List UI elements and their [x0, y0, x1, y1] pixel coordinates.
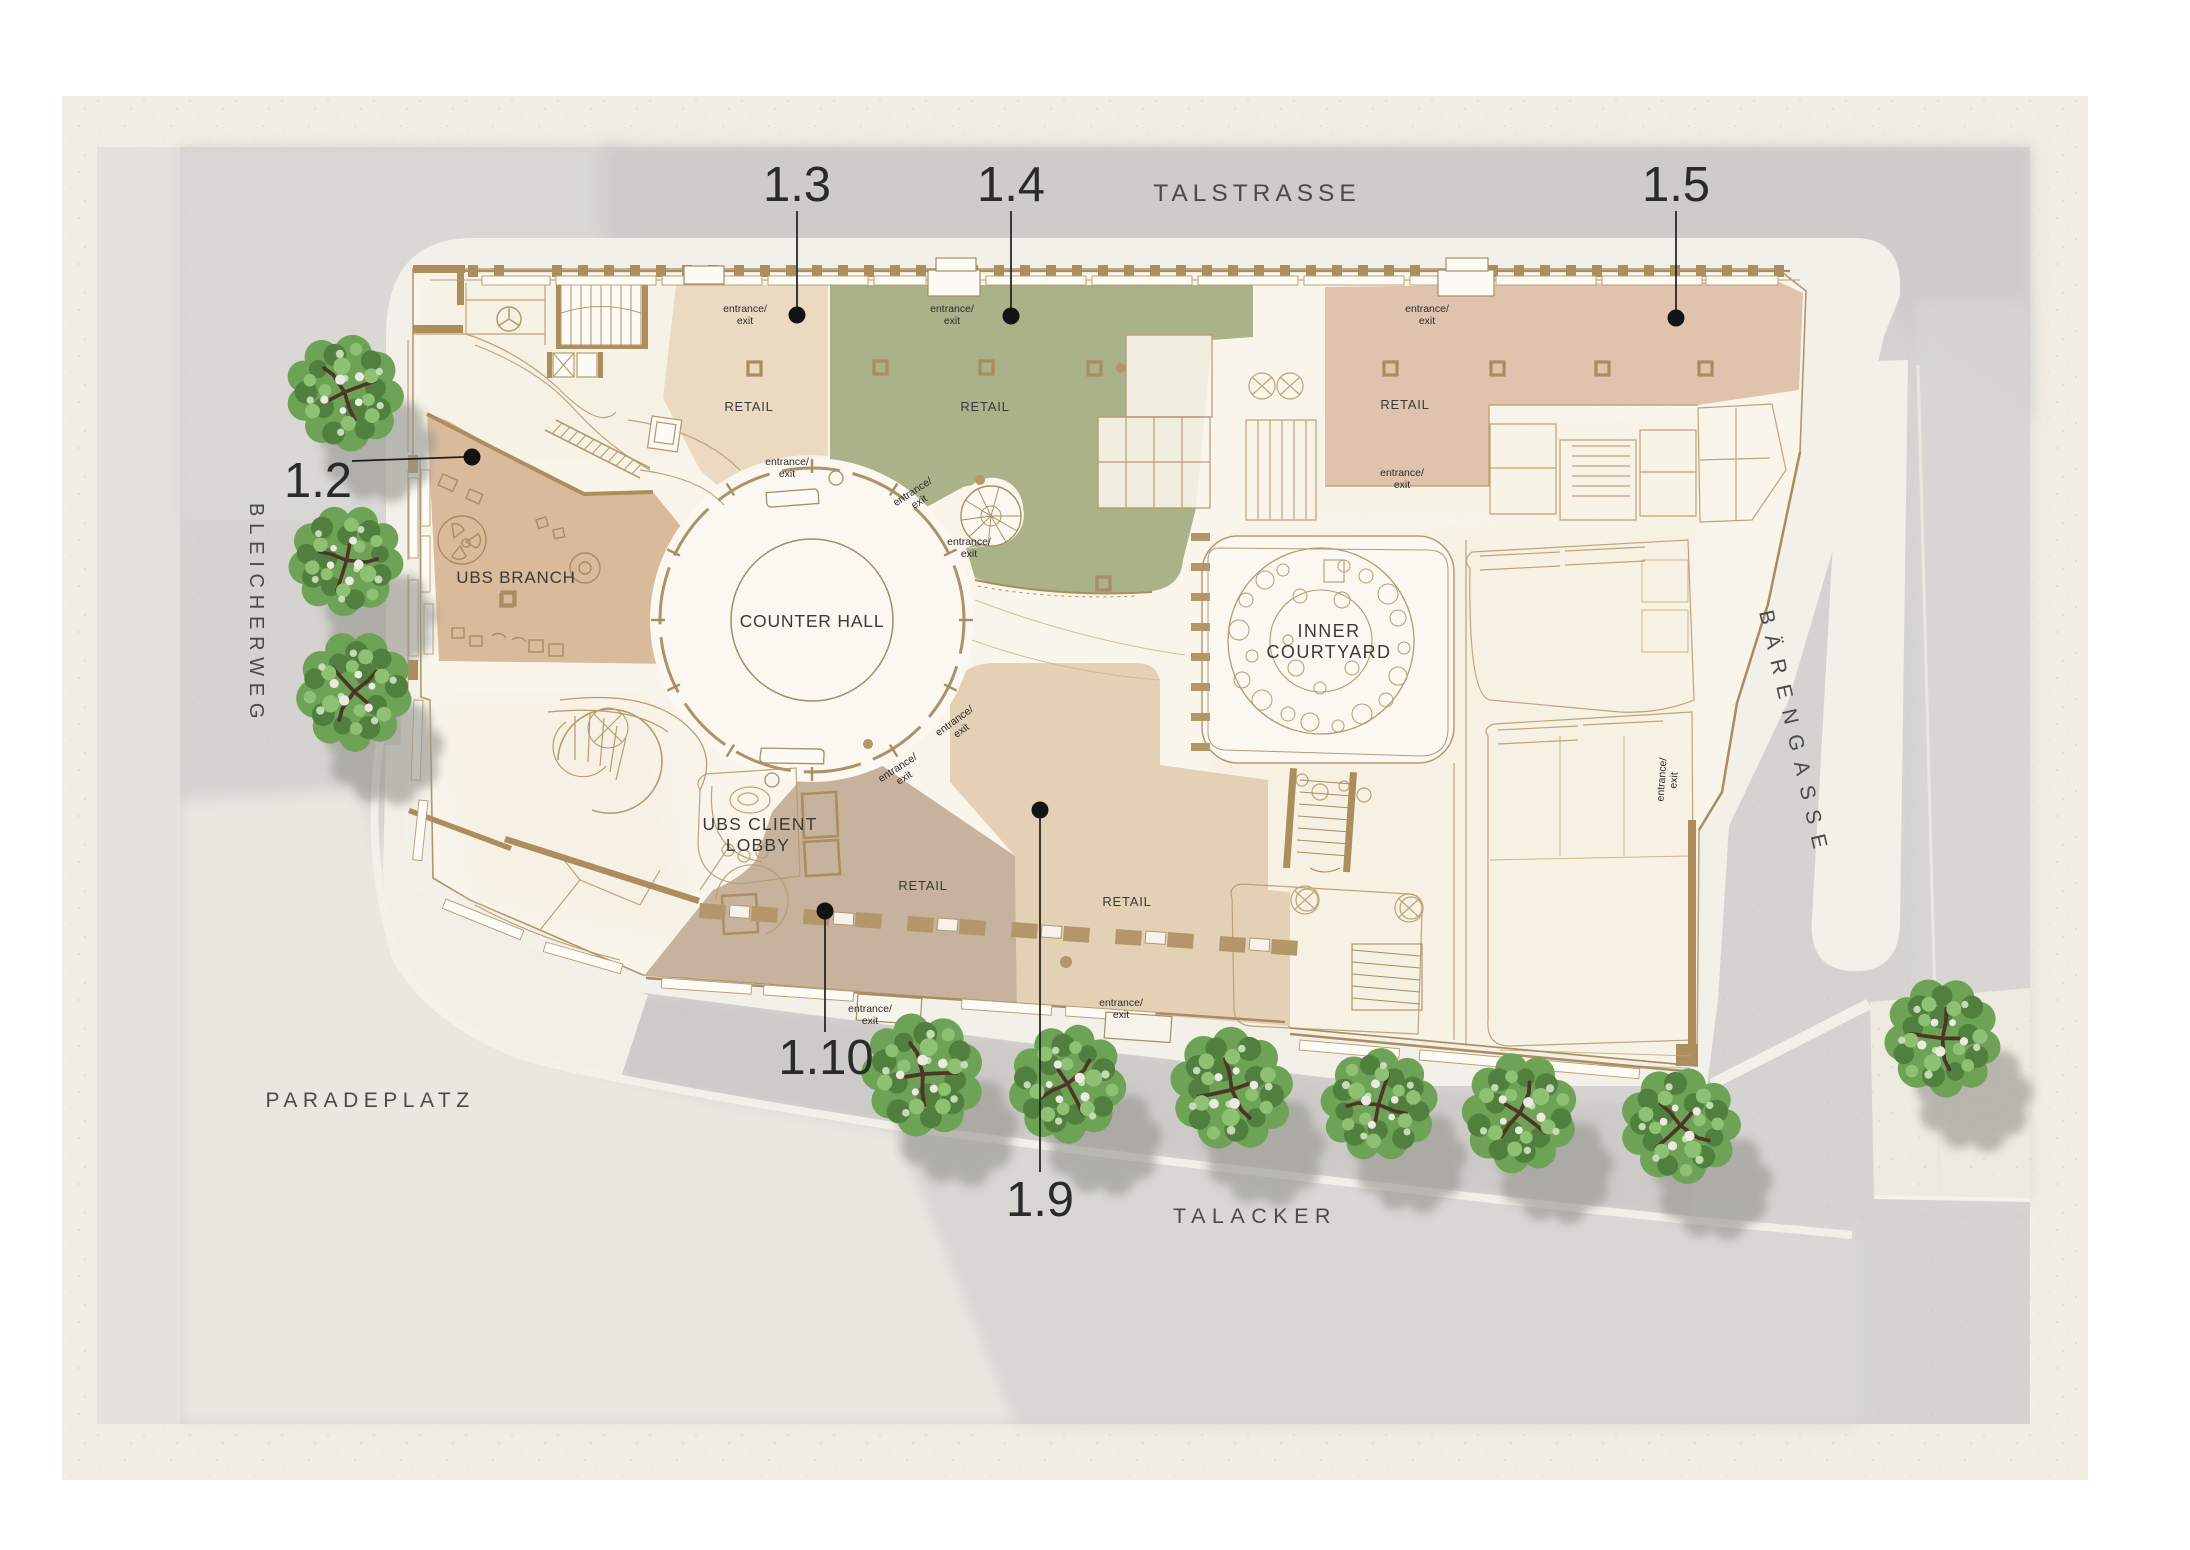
svg-text:exit: exit	[1113, 1009, 1129, 1021]
svg-text:exit: exit	[862, 1015, 878, 1027]
svg-text:COURTYARD: COURTYARD	[1267, 642, 1392, 662]
svg-text:exit: exit	[737, 315, 753, 327]
svg-text:entrance/: entrance/	[723, 303, 767, 315]
svg-text:INNER: INNER	[1297, 621, 1360, 641]
svg-text:entrance/: entrance/	[765, 456, 809, 468]
svg-text:1.5: 1.5	[1642, 158, 1710, 212]
svg-text:1.10: 1.10	[778, 1031, 873, 1085]
svg-text:exit: exit	[1419, 315, 1435, 327]
svg-text:exit: exit	[1394, 479, 1410, 491]
svg-text:exit: exit	[1667, 772, 1680, 789]
svg-text:entrance/: entrance/	[947, 536, 991, 548]
svg-text:entrance/: entrance/	[930, 303, 974, 315]
svg-text:1.2: 1.2	[284, 454, 352, 508]
svg-text:LOBBY: LOBBY	[726, 835, 790, 855]
svg-text:RETAIL: RETAIL	[960, 399, 1009, 414]
svg-text:exit: exit	[944, 315, 960, 327]
svg-text:TALACKER: TALACKER	[1173, 1204, 1337, 1228]
svg-text:entrance/: entrance/	[1380, 467, 1424, 479]
svg-text:UBS BRANCH: UBS BRANCH	[456, 568, 575, 587]
svg-text:COUNTER HALL: COUNTER HALL	[740, 611, 885, 631]
svg-text:TALSTRASSE: TALSTRASSE	[1153, 180, 1360, 207]
svg-text:entrance/: entrance/	[1099, 997, 1143, 1009]
svg-text:entrance/: entrance/	[1405, 303, 1449, 315]
svg-text:exit: exit	[961, 548, 977, 560]
svg-text:exit: exit	[779, 468, 795, 480]
svg-text:1.3: 1.3	[763, 158, 831, 212]
svg-text:entrance/: entrance/	[848, 1003, 892, 1015]
svg-text:RETAIL: RETAIL	[1380, 397, 1429, 412]
svg-text:BLEICHERWEG: BLEICHERWEG	[245, 503, 267, 725]
svg-text:1.9: 1.9	[1006, 1173, 1074, 1227]
svg-text:UBS CLIENT: UBS CLIENT	[702, 814, 817, 834]
svg-text:1.4: 1.4	[977, 158, 1045, 212]
svg-text:RETAIL: RETAIL	[724, 399, 773, 414]
svg-text:RETAIL: RETAIL	[1102, 894, 1151, 909]
svg-text:PARADEPLATZ: PARADEPLATZ	[265, 1089, 474, 1112]
svg-text:RETAIL: RETAIL	[898, 878, 947, 893]
